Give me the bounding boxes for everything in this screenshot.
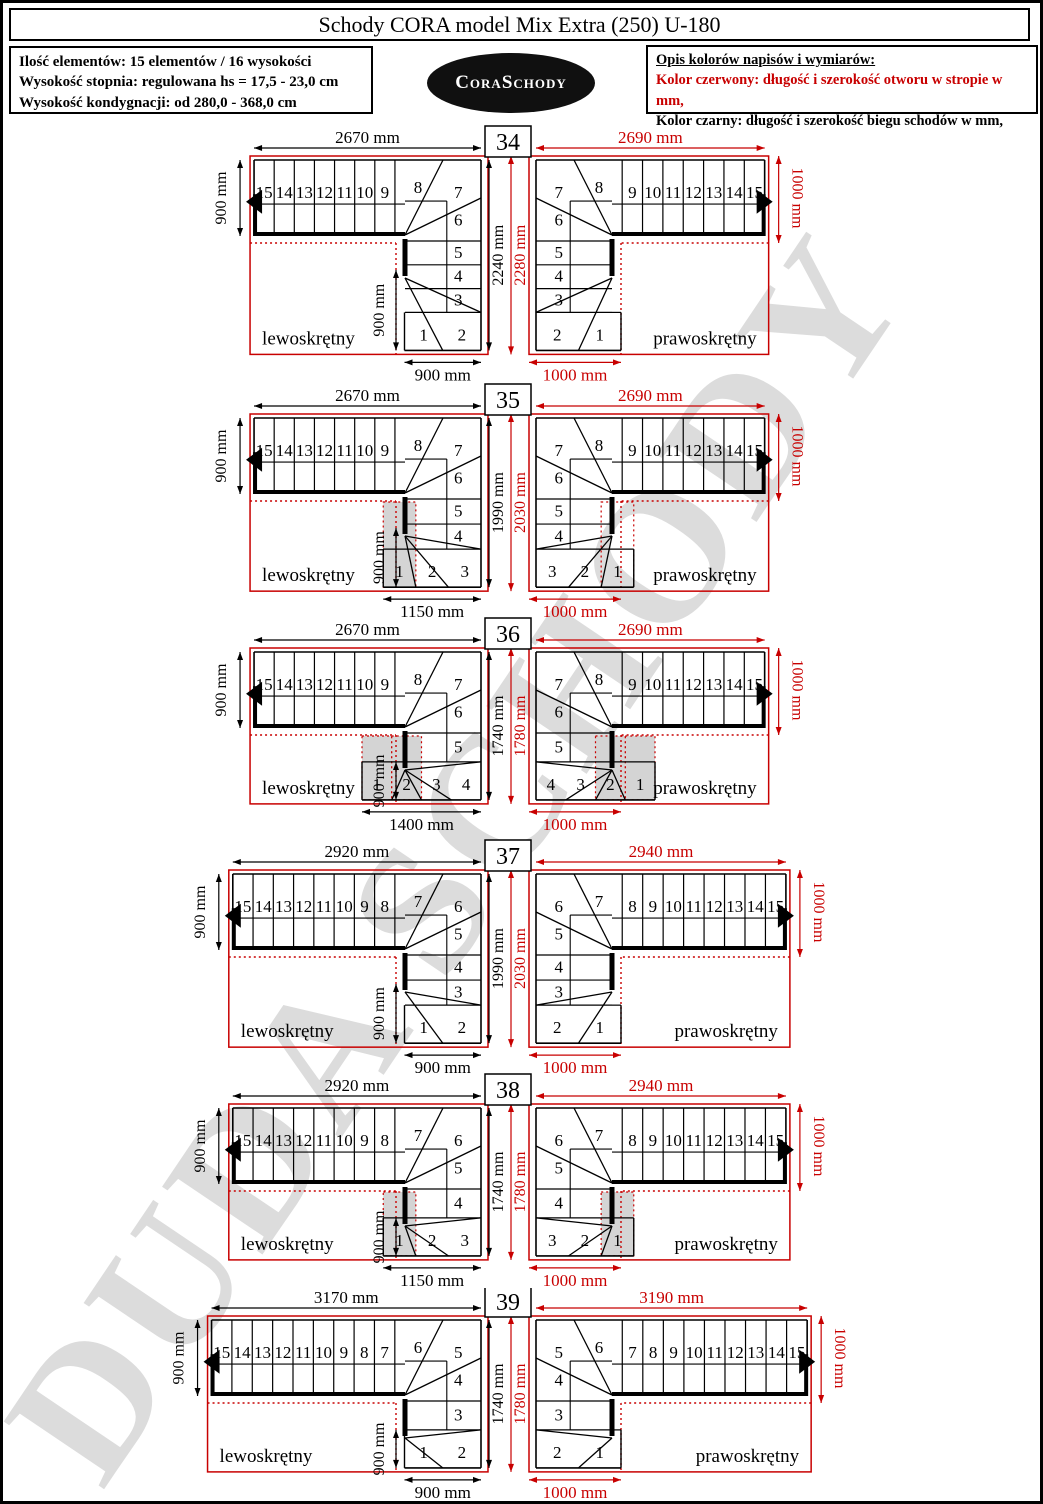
winder-line	[405, 1108, 443, 1183]
dim-label-top: 2920 mm	[325, 1076, 390, 1095]
dim-label-height-black: 2240 mm	[490, 224, 507, 285]
step-number: 2	[402, 775, 411, 794]
dim-label-side: 900 mm	[213, 663, 230, 716]
arrowhead	[216, 1108, 222, 1116]
diagram-label: prawoskrętny	[674, 1234, 778, 1255]
step-number: 14	[747, 897, 765, 916]
dim-label-bottom: 1000 mm	[543, 1483, 608, 1502]
step-number: 15	[746, 675, 763, 694]
variant-row-35: 1514131211109876541232670 mm900 mm1990 m…	[3, 383, 1040, 617]
arrowhead	[473, 403, 481, 409]
dim-label-height-red: 2030 mm	[512, 928, 529, 989]
step-number: 3	[576, 775, 585, 794]
step-number: 12	[274, 1343, 291, 1362]
step-number: 5	[454, 1158, 463, 1177]
step-number: 4	[454, 527, 463, 546]
step-number: 9	[669, 1343, 678, 1362]
dim-label-side: 900 mm	[171, 1331, 188, 1384]
step-number: 1	[596, 1018, 605, 1037]
step-number: 10	[686, 1343, 703, 1362]
winder-line	[574, 1108, 612, 1183]
dim-label-side: 900 mm	[213, 429, 230, 482]
winder-line	[536, 690, 612, 727]
step-number: 5	[555, 1158, 564, 1177]
dim-label-top: 2920 mm	[325, 842, 390, 861]
step-number: 11	[295, 1343, 311, 1362]
arrowhead	[405, 1477, 413, 1483]
dim-label-height-black: 1740 mm	[490, 695, 507, 756]
arrowhead	[536, 637, 544, 643]
arrowhead	[799, 1305, 807, 1311]
step-number: 8	[380, 897, 389, 916]
row-svg-35: 1514131211109876541232670 mm900 mm1990 m…	[3, 383, 1040, 617]
arrowhead	[486, 652, 492, 660]
step-number: 2	[458, 1443, 467, 1462]
winder-line	[405, 1430, 481, 1438]
diagram-label: lewoskrętny	[220, 1446, 313, 1467]
dim-label-height-red: 1780 mm	[512, 1151, 529, 1212]
step-number: 15	[767, 1131, 784, 1150]
step-number: 4	[547, 775, 556, 794]
step-number: 12	[685, 675, 702, 694]
step-number: 6	[414, 1338, 423, 1357]
arrowhead	[393, 1430, 399, 1438]
arrowhead	[776, 727, 782, 735]
legend-heading: Opis kolorów napisów i wymiarów:	[656, 50, 1028, 70]
variant-row-38: 1514131211109876541232920 mm900 mm1740 m…	[3, 1073, 1040, 1288]
winder-line	[405, 1218, 481, 1226]
step-number: 5	[555, 1343, 564, 1362]
winder-line	[536, 278, 612, 312]
winder-line	[405, 536, 481, 549]
winder-line	[601, 536, 612, 587]
arrowhead	[613, 1265, 621, 1271]
arrowhead	[818, 1395, 824, 1403]
dim-label-inner: 900 mm	[371, 1210, 388, 1263]
step-number: 15	[234, 897, 251, 916]
step-number: 15	[788, 1343, 805, 1362]
step-number: 11	[665, 441, 681, 460]
stair-diagram-prawoskretny-38: 1514131211109876541232940 mm1000 mm1000 …	[529, 1076, 827, 1288]
diagram-label: lewoskrętny	[241, 1021, 334, 1042]
winder-line	[574, 418, 612, 493]
arrowhead	[473, 1305, 481, 1311]
arrowhead	[486, 160, 492, 168]
step-number: 10	[644, 441, 661, 460]
winder-line	[405, 278, 481, 312]
winder-line	[536, 456, 612, 493]
step-number: 11	[316, 1131, 332, 1150]
arrowhead	[393, 342, 399, 350]
step-number: 2	[428, 1231, 437, 1250]
step-number: 8	[649, 1343, 658, 1362]
step-number: 5	[454, 737, 463, 756]
dim-label-height-black: 1990 mm	[490, 928, 507, 989]
step-number: 10	[665, 1131, 682, 1150]
stair-diagram-lewoskretny-38: 1514131211109876541232920 mm900 mm1740 m…	[192, 1076, 529, 1288]
step-number: 6	[454, 210, 463, 229]
step-number: 13	[726, 897, 743, 916]
arrowhead	[393, 1035, 399, 1043]
step-number: 14	[768, 1343, 786, 1362]
arrowhead	[237, 160, 243, 168]
dim-label-side: 1000 mm	[789, 168, 806, 229]
arrowhead	[613, 1477, 621, 1483]
step-number: 9	[360, 897, 369, 916]
step-number: 15	[767, 897, 784, 916]
dim-label-inner: 900 mm	[371, 1422, 388, 1475]
page-title: Schody CORA model Mix Extra (250) U-180	[9, 8, 1030, 41]
step-number: 1	[419, 1443, 428, 1462]
step-number: 13	[296, 183, 313, 202]
step-number: 2	[581, 1231, 590, 1250]
step-number: 14	[726, 441, 744, 460]
diagram-label: lewoskrętny	[262, 328, 355, 349]
step-number: 11	[665, 675, 681, 694]
arrowhead	[776, 493, 782, 501]
stair-diagram-lewoskretny-37: 1514131211109876543122920 mm900 mm1990 m…	[192, 842, 529, 1073]
step-number: 10	[356, 675, 373, 694]
step-number: 9	[381, 441, 390, 460]
arrowhead	[776, 235, 782, 243]
step-number: 10	[644, 183, 661, 202]
step-number: 15	[746, 441, 763, 460]
step-number: 8	[595, 178, 604, 197]
variant-row-37: 1514131211109876543122920 mm900 mm1990 m…	[3, 839, 1040, 1073]
step-number: 2	[458, 325, 467, 344]
legend-red-line: Kolor czerwony: długość i szerokość otwo…	[656, 70, 1028, 111]
step-number: 9	[649, 1131, 658, 1150]
arrowhead	[216, 874, 222, 882]
dim-label-top: 2690 mm	[618, 386, 683, 405]
arrowhead	[473, 1093, 481, 1099]
diagram-label: prawoskrętny	[653, 778, 757, 799]
arrowhead	[486, 579, 492, 587]
diagram-label: prawoskrętny	[653, 328, 757, 349]
arrowhead	[486, 1108, 492, 1116]
step-number: 13	[275, 1131, 292, 1150]
step-number: 13	[275, 897, 292, 916]
step-number: 13	[254, 1343, 271, 1362]
dim-label-top: 2670 mm	[335, 620, 400, 639]
step-number: 7	[628, 1343, 637, 1362]
winder-line	[536, 1146, 612, 1183]
arrowhead	[393, 270, 399, 278]
dim-label-height-red: 2280 mm	[512, 224, 529, 285]
arrowhead	[473, 637, 481, 643]
step-number: 13	[705, 675, 722, 694]
arrowhead	[237, 652, 243, 660]
step-number: 14	[726, 675, 744, 694]
dim-label-bottom: 1000 mm	[543, 1271, 608, 1288]
dim-label-top: 2690 mm	[618, 620, 683, 639]
arrowhead	[508, 1039, 514, 1047]
step-number: 6	[454, 468, 463, 487]
step-number: 8	[628, 1131, 637, 1150]
product-info-box: Ilość elementów: 15 elementów / 16 wysok…	[9, 46, 373, 114]
step-number: 5	[555, 502, 564, 521]
step-number: 4	[454, 1370, 463, 1389]
dim-label-side: 900 mm	[192, 1119, 209, 1172]
arrowhead	[818, 1316, 824, 1324]
diagram-rows: DUDA SCHODY 1514131211109876543122670 mm…	[3, 118, 1040, 1504]
row-svg-37: 1514131211109876543122920 mm900 mm1990 m…	[3, 839, 1040, 1073]
step-number: 14	[276, 675, 294, 694]
step-number: 15	[256, 441, 273, 460]
arrowhead	[362, 809, 370, 815]
step-number: 7	[380, 1343, 389, 1362]
step-number: 11	[707, 1343, 723, 1362]
dim-label-side: 1000 mm	[831, 1328, 848, 1389]
dim-label-height-red: 2030 mm	[512, 472, 529, 533]
arrowhead	[237, 228, 243, 236]
diagram-label: prawoskrętny	[696, 1446, 800, 1467]
step-number: 9	[649, 897, 658, 916]
dim-label-bottom: 1150 mm	[400, 1271, 464, 1288]
step-number: 2	[553, 1018, 562, 1037]
arrowhead	[473, 809, 481, 815]
step-number: 6	[454, 897, 463, 916]
step-number: 7	[454, 183, 463, 202]
winder-line	[574, 1320, 612, 1395]
step-number: 5	[454, 924, 463, 943]
winder-line	[536, 198, 612, 235]
step-number: 4	[555, 958, 564, 977]
arrowhead	[536, 1305, 544, 1311]
winder-line	[536, 992, 612, 1005]
step-number: 3	[555, 983, 564, 1002]
dim-label-inner: 900 mm	[371, 987, 388, 1040]
arrowhead	[529, 1052, 537, 1058]
winder-line	[569, 536, 612, 587]
step-number: 4	[454, 958, 463, 977]
arrowhead	[778, 1093, 786, 1099]
step-number: 13	[747, 1343, 764, 1362]
arrowhead	[473, 145, 481, 151]
winder-line	[405, 992, 481, 1005]
arrowhead	[473, 596, 481, 602]
stair-diagram-prawoskretny-34: 1514131211109876543122690 mm1000 mm1000 …	[529, 128, 806, 383]
step-number: 12	[685, 441, 702, 460]
step-number: 2	[553, 325, 562, 344]
info-line-storey-height: Wysokość kondygnacji: od 280,0 - 368,0 c…	[19, 93, 363, 113]
dim-label-top: 2940 mm	[629, 842, 694, 861]
diagram-label: lewoskrętny	[241, 1234, 334, 1255]
step-number: 12	[316, 441, 333, 460]
arrowhead	[757, 145, 765, 151]
dim-label-height-black: 1740 mm	[490, 1363, 507, 1424]
arrowhead	[508, 346, 514, 354]
diagram-label: lewoskrętny	[262, 565, 355, 586]
step-number: 10	[644, 675, 661, 694]
step-number: 3	[548, 1231, 557, 1250]
arrowhead	[536, 859, 544, 865]
arrowhead	[254, 637, 262, 643]
arrowhead	[508, 796, 514, 804]
step-number: 11	[686, 897, 702, 916]
step-number: 3	[555, 291, 564, 310]
winder-line	[574, 160, 612, 235]
winder-line	[405, 160, 443, 235]
dim-label-side: 1000 mm	[810, 882, 827, 943]
arrowhead	[797, 1104, 803, 1112]
step-number: 3	[454, 983, 463, 1002]
step-number: 7	[454, 441, 463, 460]
variant-row-34: 1514131211109876543122670 mm900 mm2240 m…	[3, 118, 1040, 383]
arrowhead	[508, 583, 514, 591]
stair-diagram-prawoskretny-37: 1514131211109876543122940 mm1000 mm1000 …	[529, 842, 827, 1073]
step-number: 5	[454, 502, 463, 521]
arrowhead	[254, 145, 262, 151]
arrowhead	[797, 949, 803, 957]
dim-label-top: 2940 mm	[629, 1076, 694, 1095]
arrowhead	[405, 1052, 413, 1058]
dim-label-top: 2690 mm	[618, 128, 683, 147]
step-number: 15	[256, 675, 273, 694]
stair-diagram-lewoskretny-39: 1514131211109876543123170 mm900 mm1740 m…	[171, 1288, 529, 1502]
step-number: 6	[454, 1131, 463, 1150]
step-number: 7	[595, 1126, 604, 1145]
step-number: 9	[381, 675, 390, 694]
step-number: 2	[581, 562, 590, 581]
variant-number: 38	[496, 1078, 520, 1104]
step-number: 11	[316, 897, 332, 916]
winder-line	[536, 1430, 612, 1438]
step-number: 2	[458, 1018, 467, 1037]
dim-label-height-black: 1740 mm	[490, 1151, 507, 1212]
step-number: 10	[356, 183, 373, 202]
step-number: 12	[316, 183, 333, 202]
arrowhead	[529, 809, 537, 815]
brand-logo: CoraSchody	[427, 53, 595, 113]
step-number: 12	[685, 183, 702, 202]
step-number: 13	[705, 183, 722, 202]
arrowhead	[613, 1052, 621, 1058]
arrowhead	[536, 145, 544, 151]
step-number: 4	[555, 1193, 564, 1212]
variant-number: 37	[496, 844, 520, 870]
page-title-text: Schody CORA model Mix Extra (250) U-180	[318, 12, 720, 37]
step-number: 8	[414, 436, 423, 455]
arrowhead	[776, 648, 782, 656]
dim-label-bottom: 900 mm	[415, 1483, 471, 1502]
step-number: 2	[553, 1443, 562, 1462]
info-line-elements: Ilość elementów: 15 elementów / 16 wysok…	[19, 52, 363, 72]
arrowhead	[237, 720, 243, 728]
arrowhead	[237, 418, 243, 426]
step-number: 9	[360, 1131, 369, 1150]
step-number: 1	[419, 1018, 428, 1037]
step-number: 8	[380, 1131, 389, 1150]
step-number: 15	[256, 183, 273, 202]
winder-line	[405, 418, 443, 493]
step-number: 7	[595, 892, 604, 911]
arrowhead	[529, 596, 537, 602]
step-number: 14	[234, 1343, 252, 1362]
step-number: 5	[555, 243, 564, 262]
step-number: 1	[613, 562, 622, 581]
arrowhead	[486, 342, 492, 350]
arrowhead	[529, 1477, 537, 1483]
arrowhead	[613, 809, 621, 815]
step-number: 3	[432, 775, 441, 794]
dim-label-bottom: 1000 mm	[543, 1058, 608, 1073]
step-number: 3	[460, 562, 469, 581]
step-number: 11	[336, 441, 352, 460]
arrowhead	[473, 859, 481, 865]
arrowhead	[757, 637, 765, 643]
arrowhead	[486, 1320, 492, 1328]
dim-label-side: 1000 mm	[789, 660, 806, 721]
step-number: 3	[548, 562, 557, 581]
arrowhead	[233, 859, 241, 865]
winder-line	[536, 912, 612, 949]
dim-label-top: 2670 mm	[335, 386, 400, 405]
step-number: 12	[727, 1343, 744, 1362]
step-number: 3	[460, 1231, 469, 1250]
diagram-label: prawoskrętny	[674, 1021, 778, 1042]
step-number: 14	[276, 183, 294, 202]
step-number: 14	[255, 1131, 273, 1150]
arrowhead	[486, 874, 492, 882]
step-number: 7	[414, 1126, 423, 1145]
stair-diagram-lewoskretny-34: 1514131211109876543122670 mm900 mm2240 m…	[213, 128, 529, 383]
step-number: 15	[213, 1343, 230, 1362]
row-svg-39: 1514131211109876543123170 mm900 mm1740 m…	[3, 1288, 1040, 1504]
arrowhead	[797, 870, 803, 878]
step-number: 11	[336, 183, 352, 202]
step-number: 12	[316, 675, 333, 694]
step-number: 3	[454, 291, 463, 310]
diagram-label: lewoskrętny	[262, 778, 355, 799]
dim-label-side: 900 mm	[213, 171, 230, 224]
dim-label-top: 3190 mm	[639, 1288, 704, 1307]
step-number: 7	[454, 675, 463, 694]
step-number: 5	[555, 924, 564, 943]
step-number: 9	[340, 1343, 349, 1362]
step-number: 8	[628, 897, 637, 916]
arrowhead	[254, 403, 262, 409]
winder-line	[405, 1358, 481, 1395]
stair-diagram-prawoskretny-39: 1514131211109876543123190 mm1000 mm1000 …	[529, 1288, 848, 1502]
step-number: 8	[360, 1343, 369, 1362]
step-number: 6	[454, 702, 463, 721]
step-number: 9	[628, 441, 637, 460]
step-number: 7	[555, 675, 564, 694]
step-number: 9	[381, 183, 390, 202]
arrowhead	[383, 1265, 391, 1271]
catalog-page: Schody CORA model Mix Extra (250) U-180 …	[0, 0, 1043, 1504]
winder-line	[405, 456, 481, 493]
step-number: 4	[555, 527, 564, 546]
step-number: 8	[414, 670, 423, 689]
variant-row-36: 1514131211109876512342670 mm900 mm1740 m…	[3, 617, 1040, 839]
step-number: 15	[234, 1131, 251, 1150]
arrowhead	[195, 1320, 201, 1328]
arrowhead	[536, 1093, 544, 1099]
step-number: 13	[726, 1131, 743, 1150]
step-number: 12	[295, 1131, 312, 1150]
step-number: 13	[705, 441, 722, 460]
step-number: 3	[555, 1405, 564, 1424]
step-number: 14	[276, 441, 294, 460]
arrowhead	[529, 1265, 537, 1271]
dim-label-bottom: 900 mm	[415, 365, 471, 383]
arrowhead	[486, 792, 492, 800]
winder-line	[574, 652, 612, 727]
winder-line	[405, 912, 481, 949]
step-number: 1	[596, 325, 605, 344]
